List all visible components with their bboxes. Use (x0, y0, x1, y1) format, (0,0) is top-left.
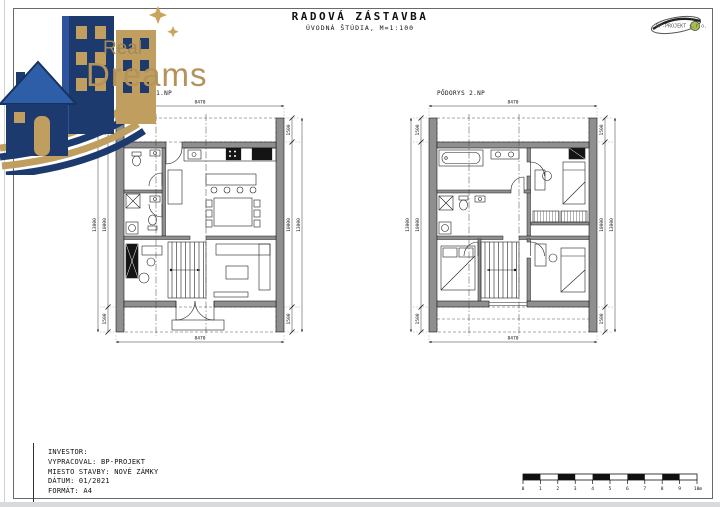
brand-name-bottom: Dreams (86, 56, 208, 94)
svg-text:3: 3 (574, 486, 577, 492)
title-block-investor: INVESTOR: (48, 448, 158, 458)
terrace-step (172, 320, 224, 330)
drawing-sheet: RADOVÁ ZÁSTAVBA ÚVODNÁ ŠTÚDIA, M=1:100 B… (0, 0, 720, 507)
svg-text:9: 9 (678, 486, 681, 492)
svg-text:13000: 13000 (92, 218, 98, 232)
bed-double (441, 246, 475, 290)
svg-text:5: 5 (609, 486, 612, 492)
bar-stools (211, 187, 256, 193)
svg-text:1500: 1500 (415, 313, 421, 324)
terrace (124, 307, 276, 332)
living-room (214, 244, 270, 297)
title-block-date: DÁTUM: 01/2021 (48, 477, 158, 487)
svg-text:7: 7 (643, 486, 646, 492)
svg-text:13000: 13000 (296, 218, 302, 232)
title-block: INVESTOR: VYPRACOVAL: BP-PROJEKT MIESTO … (33, 443, 158, 502)
svg-text:10000: 10000 (102, 218, 108, 232)
staircase (481, 242, 519, 298)
chair (543, 172, 552, 181)
svg-text:10m: 10m (694, 486, 703, 492)
svg-text:1500: 1500 (599, 313, 605, 324)
plan-title: PÔDORYS 2.NP (437, 90, 485, 97)
tv-bench (214, 292, 248, 297)
svg-text:10000: 10000 (286, 218, 292, 232)
svg-text:1500: 1500 (599, 124, 605, 135)
company-logo-text: BP-PROJEKT s.r.o. (656, 24, 707, 30)
brand-logo: Real Dreams (0, 0, 250, 175)
svg-text:1500: 1500 (286, 313, 292, 324)
svg-text:1500: 1500 (286, 124, 292, 135)
svg-text:13000: 13000 (405, 218, 411, 232)
svg-text:6: 6 (626, 486, 629, 492)
bed-single (561, 248, 585, 292)
hall-cabinet (168, 170, 182, 204)
terrace-doors (176, 301, 214, 320)
door-arc (464, 242, 478, 256)
window-bottom (489, 303, 527, 306)
fridge-icon (252, 148, 272, 160)
bathroom (439, 150, 524, 190)
scale-bar-ticks (523, 480, 697, 484)
company-logo: BP-PROJEKT s.r.o. (648, 10, 710, 38)
svg-text:4: 4 (591, 486, 594, 492)
bathroom (126, 194, 162, 234)
chair (549, 254, 557, 262)
svg-text:8: 8 (661, 486, 664, 492)
scale-bar-labels: 0 1 2 3 4 5 6 7 8 9 10m (522, 486, 703, 492)
roof-overhang (437, 118, 589, 142)
study-room (126, 244, 162, 283)
wc-laundry (439, 196, 485, 234)
svg-text:10000: 10000 (599, 218, 605, 232)
staircase (168, 242, 206, 298)
bedroom-top-right (531, 148, 586, 204)
scale-bar: 0 1 2 3 4 5 6 7 8 9 10m (521, 472, 705, 492)
sofa (216, 244, 270, 255)
bedroom-master (441, 242, 478, 290)
svg-text:1500: 1500 (415, 124, 421, 135)
title-block-format: FORMÁT: A4 (48, 487, 158, 497)
title-block-site: MIESTO STAVBY: NOVÉ ZÁMKY (48, 468, 158, 478)
svg-text:1500: 1500 (102, 313, 108, 324)
svg-text:13000: 13000 (609, 218, 615, 232)
title-block-author: VYPRACOVAL: BP-PROJEKT (48, 458, 158, 468)
svg-text:8470: 8470 (194, 336, 205, 342)
closets (533, 211, 587, 222)
bedroom-bottom-right (531, 242, 586, 292)
svg-text:2: 2 (556, 486, 559, 492)
interior-walls (437, 148, 589, 301)
svg-text:0: 0 (522, 486, 525, 492)
dining-table (206, 198, 260, 227)
svg-text:8470: 8470 (507, 100, 518, 106)
svg-text:1: 1 (539, 486, 542, 492)
coffee-table (226, 266, 248, 279)
floor-plan-2np: PÔDORYS 2.NP 8470 8470 13000 1500 10000 … (401, 84, 621, 352)
page-edge-bottom (0, 502, 720, 507)
door-arc (531, 162, 545, 176)
svg-text:8470: 8470 (507, 336, 518, 342)
svg-text:10000: 10000 (415, 218, 421, 232)
balcony (437, 307, 589, 332)
bed-single (563, 162, 585, 204)
kitchen-island (206, 174, 256, 185)
